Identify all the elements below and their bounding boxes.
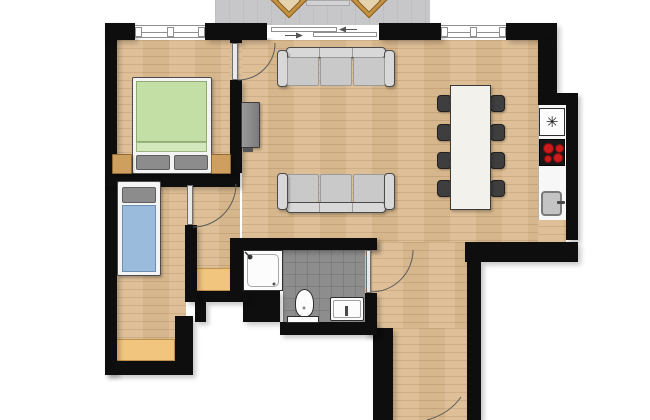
burner-icon xyxy=(543,143,554,154)
wall-right-upper xyxy=(538,40,557,93)
bed-pillow xyxy=(136,155,170,170)
tv-sideboard-foot xyxy=(243,148,253,152)
toilet-bowl xyxy=(295,289,314,317)
toilet-tank xyxy=(287,316,319,323)
dining-chair xyxy=(490,180,505,197)
wall-bathroom-top xyxy=(230,238,377,250)
burner-icon xyxy=(553,153,563,163)
bedroom2-mat xyxy=(113,339,175,361)
double-bed-duvet-fold xyxy=(136,142,207,152)
cooktop xyxy=(539,139,565,166)
floor-plan: ✳ xyxy=(0,0,650,420)
wall-shower-south xyxy=(243,291,280,322)
washbasin-faucet-icon xyxy=(345,306,348,316)
window-post xyxy=(499,27,506,37)
sliding-panel xyxy=(313,32,377,37)
single-bed-duvet xyxy=(122,205,156,272)
wall-nook-stub xyxy=(195,302,206,322)
sofa-armrest xyxy=(277,173,288,210)
shower-tray-line xyxy=(247,254,279,287)
wall-bottom-left xyxy=(105,361,193,375)
wall-top-d xyxy=(506,23,557,40)
wall-left xyxy=(105,23,117,375)
sofa-armrest xyxy=(384,173,395,210)
wall-step-bottom-left xyxy=(175,316,193,361)
nightstand xyxy=(112,154,132,174)
wall-top-b xyxy=(205,23,267,40)
window-post xyxy=(135,27,142,37)
dining-chair xyxy=(490,152,505,169)
sofa-backrest xyxy=(286,202,386,213)
wall-corridor-right xyxy=(467,262,481,420)
entry-corridor-floor xyxy=(393,328,467,420)
kitchen-vent-icon: ✳ xyxy=(539,108,565,136)
bed-pillow xyxy=(122,187,156,203)
double-bed xyxy=(132,77,212,174)
wall-nook-bottom xyxy=(193,291,248,302)
sofa xyxy=(277,47,395,88)
wall-bottom-right xyxy=(465,242,578,262)
wall-top-c xyxy=(379,23,441,40)
wall-corridor-left xyxy=(373,328,393,420)
dining-table xyxy=(450,85,491,210)
living-room-floor-lower xyxy=(377,242,467,328)
living-room-window xyxy=(441,25,506,38)
bathroom-door xyxy=(366,250,371,293)
single-bed xyxy=(117,181,161,276)
nightstand xyxy=(211,154,231,174)
bedroom2-door xyxy=(187,185,193,225)
burner-icon xyxy=(544,155,552,163)
wall-top-a xyxy=(105,23,135,40)
dining-chair xyxy=(490,124,505,141)
master-bedroom-door xyxy=(232,43,238,80)
sofa-seat-cushions xyxy=(287,174,385,203)
vent-glyph: ✳ xyxy=(546,113,559,131)
balcony-sliding-door xyxy=(267,25,379,38)
living-room-floor-under-counter xyxy=(538,218,566,242)
kitchen-faucet-icon xyxy=(557,201,565,204)
sofa-armrest xyxy=(384,50,395,87)
double-bed-duvet xyxy=(136,81,207,142)
tv-sideboard xyxy=(241,102,260,148)
bed-pillow xyxy=(174,155,208,170)
burner-icon xyxy=(555,144,564,153)
master-bedroom-window xyxy=(135,25,205,38)
window-post xyxy=(167,27,174,37)
wall-bathroom-left xyxy=(230,250,243,291)
window-post xyxy=(198,27,205,37)
shower xyxy=(243,250,283,291)
wall-bathroom-bottom xyxy=(280,322,377,335)
dining-chair xyxy=(490,95,505,112)
window-post xyxy=(441,27,448,37)
patio-table xyxy=(306,0,350,6)
washbasin xyxy=(330,297,364,321)
wall-right xyxy=(566,107,578,240)
window-post xyxy=(470,27,477,37)
sofa-seat-cushions xyxy=(287,57,385,86)
sofa xyxy=(277,172,395,213)
wall-bedroom2-right xyxy=(185,225,197,302)
